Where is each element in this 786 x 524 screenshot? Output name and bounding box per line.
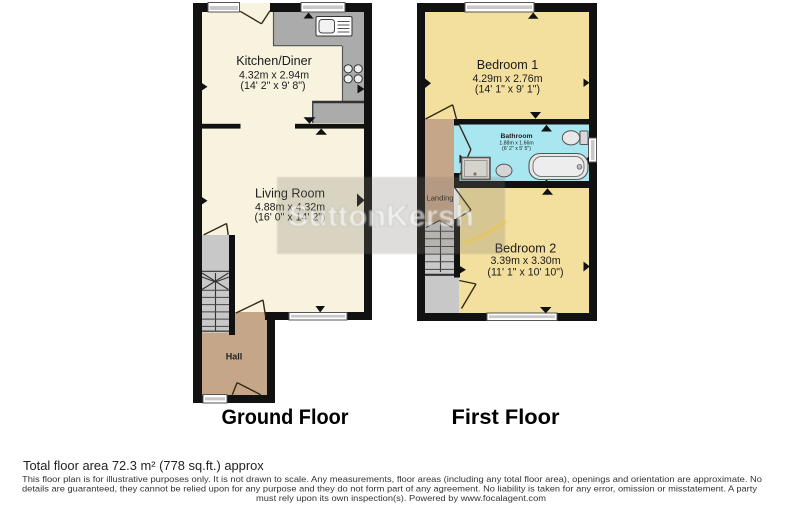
svg-text:must rely upon its own inspect: must rely upon its own inspection(s). Po… [256,493,546,503]
svg-text:First Floor: First Floor [452,405,561,429]
svg-text:This floor plan is for illustr: This floor plan is for illustrative purp… [22,474,762,484]
svg-text:Bathroom: Bathroom [500,133,532,140]
svg-text:(6' 2" x 5' 5"): (6' 2" x 5' 5") [502,146,531,152]
svg-text:Total floor area 72.3 m² (778: Total floor area 72.3 m² (778 sq.ft.) ap… [23,458,264,473]
svg-text:Hall: Hall [226,352,243,362]
svg-text:details are guaranteed, they c: details are guaranteed, they cannot be r… [22,484,758,494]
svg-text:Ground Floor: Ground Floor [222,405,350,429]
svg-text:SuttonKersh: SuttonKersh [288,200,474,233]
svg-text:Bedroom 1: Bedroom 1 [477,58,539,72]
svg-text:(14' 1" x 9' 1"): (14' 1" x 9' 1") [475,84,540,96]
svg-text:(11' 1" x 10' 10"): (11' 1" x 10' 10") [487,267,563,279]
svg-text:Kitchen/Diner: Kitchen/Diner [236,54,312,68]
svg-text:(14' 2" x 9' 8"): (14' 2" x 9' 8") [240,80,305,92]
svg-text:3.39m x 3.30m: 3.39m x 3.30m [490,255,560,267]
